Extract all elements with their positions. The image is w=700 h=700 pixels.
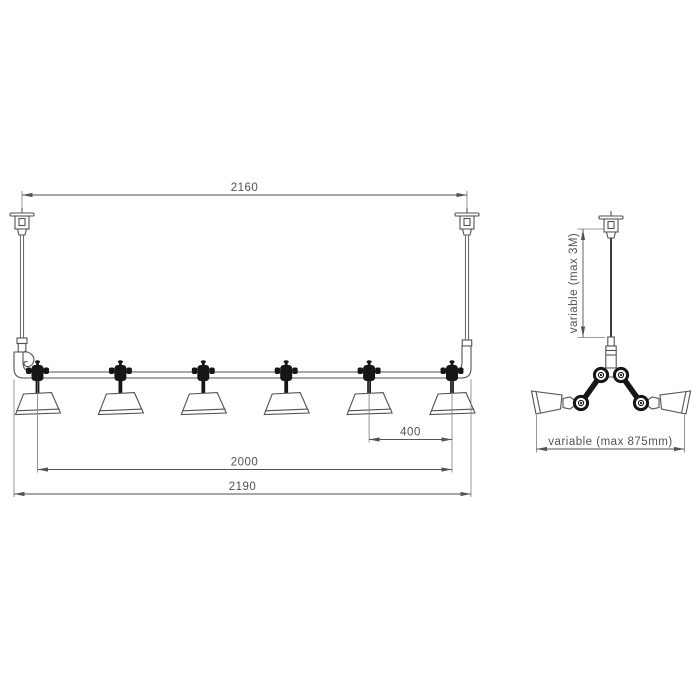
joint-upper-right — [614, 368, 627, 381]
technical-drawing: 2160 400 2000 2190 — [0, 0, 700, 700]
ceiling-mount-left — [10, 208, 34, 235]
dimension-first-last-shade: 2000 — [38, 457, 453, 472]
joint-lower-right — [634, 396, 647, 409]
ceiling-mount-side — [599, 211, 623, 238]
lamp-shade-5 — [347, 360, 392, 414]
dim-arm-spread-label: variable (max 875mm) — [548, 436, 672, 448]
dim-2190-label: 2190 — [229, 481, 257, 493]
front-view: 2160 400 2000 2190 — [10, 182, 479, 497]
lamp-shade-2 — [98, 360, 143, 414]
lamp-shade-side-left — [532, 391, 563, 414]
lamp-shade-3 — [181, 360, 226, 414]
lamp-shade-4 — [264, 360, 309, 414]
pendant-tube — [14, 346, 471, 378]
dimension-shade-spacing: 400 — [369, 427, 452, 442]
dim-2000-label: 2000 — [231, 457, 259, 469]
drawing-canvas: 2160 400 2000 2190 — [0, 0, 700, 700]
dimension-arm-spread: variable (max 875mm) — [537, 415, 685, 453]
dimension-suspension-height: variable (max 3M) — [568, 229, 605, 338]
suspension-cable-right — [465, 235, 468, 340]
joint-lower-left — [574, 396, 587, 409]
suspension-cable-side — [610, 238, 612, 337]
dim-2160-label: 2160 — [231, 182, 259, 194]
suspension-cable-left — [20, 235, 23, 338]
ceiling-mount-right — [455, 208, 479, 235]
cable-gripper-right — [462, 340, 471, 346]
joint-upper-left — [594, 368, 607, 381]
side-view: variable (max 3M) variable (max 875mm) — [532, 211, 691, 453]
lamp-shade-side-right — [660, 391, 691, 414]
dimension-canopy-distance: 2160 — [22, 182, 467, 208]
cord-loop — [24, 352, 34, 367]
dim-400-label: 400 — [400, 427, 421, 439]
dim-suspension-height-label: variable (max 3M) — [568, 233, 580, 334]
